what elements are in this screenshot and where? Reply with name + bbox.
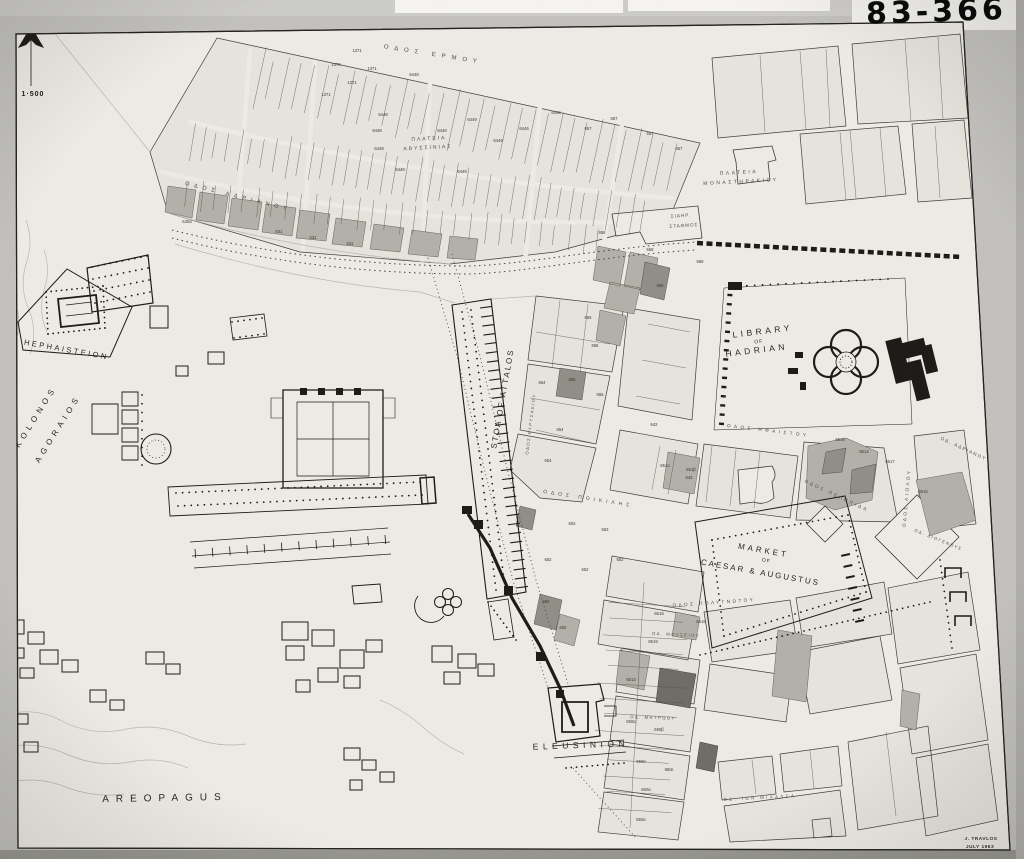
catalog-number: 83-366 (865, 0, 1024, 32)
scanned-map-photo: HEPHAISTEIONKOLONOSAGORAIOSAREOPAGUSLIBR… (0, 0, 1024, 859)
athens-agora-plan-svg: HEPHAISTEIONKOLONOSAGORAIOSAREOPAGUSLIBR… (0, 0, 1024, 859)
film-grain (0, 0, 1024, 859)
